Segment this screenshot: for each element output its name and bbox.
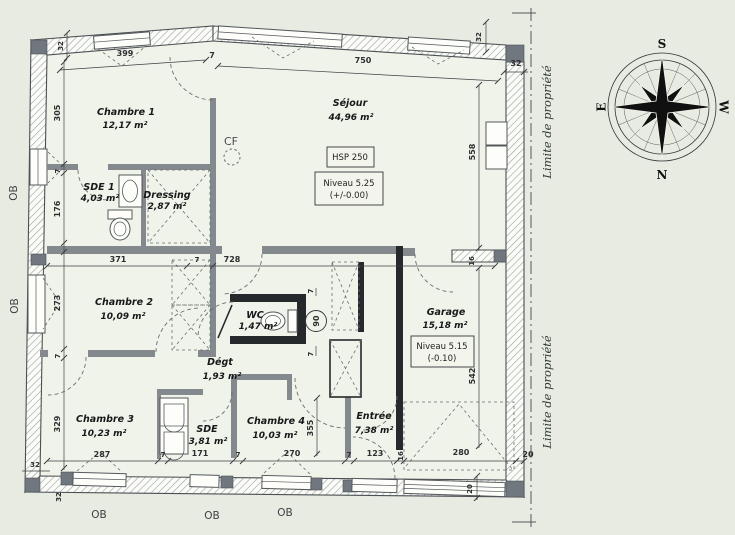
dim-inner-sejour: 728 — [224, 255, 241, 264]
dim-bottom-wall20a: 20 — [522, 450, 534, 459]
niveau-sejour-ref: (+/-0.00) — [330, 191, 369, 201]
room-label-sejour: Séjour — [333, 98, 369, 109]
floor-plan-page: Chambre 1 12,17 m² SDE 1 4,03 m² Dressin… — [0, 0, 735, 535]
dim-left-chambre2: 273 — [53, 295, 62, 312]
corner-block — [25, 478, 40, 492]
room-area-sejour: 44,96 m² — [328, 113, 374, 123]
compass-north: N — [657, 168, 668, 182]
dim-bottom-garage-door: 280 — [453, 448, 470, 457]
dim-mid-entree: 355 — [306, 419, 315, 436]
dim-inner-chambre2: 371 — [110, 255, 127, 264]
room-label-chambre4: Chambre 4 — [247, 416, 305, 427]
dim-top-chambre1: 399 — [117, 49, 134, 58]
room-area-wc: 1,47 m² — [239, 322, 278, 332]
dim-bottom-wall16: 16 — [397, 451, 405, 461]
room-area-sde1: 4,03 m² — [80, 194, 120, 204]
niveau-garage-label: Niveau 5.15 — [416, 342, 467, 352]
dim-bottom-wall20b: 20 — [466, 484, 474, 494]
room-area-garage: 15,18 m² — [423, 321, 468, 331]
toilet-sde1 — [108, 210, 132, 240]
dim-wc-wall7a: 7 — [307, 288, 315, 293]
dim-bottom-chambre4: 270 — [284, 449, 301, 458]
dim-left-sde1: 176 — [53, 200, 62, 217]
compass-star-main — [610, 55, 714, 159]
room-area-chambre1: 12,17 m² — [103, 121, 148, 131]
ob-left-2: OB — [9, 298, 21, 313]
room-area-dressing: 2,87 m² — [148, 202, 187, 212]
dim-wall32-bottomleft2: 32 — [55, 492, 63, 502]
dim-left-chambre1: 305 — [53, 104, 62, 121]
garage-wall — [396, 246, 403, 450]
dim-wall32-topleft: 32 — [57, 41, 65, 51]
dim-right-wall16: 16 — [468, 256, 476, 266]
dim-top-sejour: 750 — [355, 56, 372, 65]
floor-plan-drawing: Chambre 1 12,17 m² SDE 1 4,03 m² Dressin… — [0, 0, 735, 535]
corner-block — [31, 40, 47, 54]
room-area-degt: 1,93 m² — [203, 372, 242, 382]
room-label-degt: Dégt — [207, 357, 233, 368]
dim-wall32-bottomleft: 32 — [30, 461, 40, 469]
dim-bottom-wall7c: 7 — [347, 451, 352, 459]
room-label-dressing: Dressing — [143, 190, 190, 201]
ob-bottom-2: OB — [204, 510, 219, 522]
front-door-threshold — [352, 478, 397, 492]
room-label-sde1: SDE 1 — [83, 182, 114, 193]
dim-wall32-top2: 32 — [475, 32, 483, 42]
dim-left-chambre3: 329 — [53, 415, 62, 432]
dim-bottom-wall7b: 7 — [236, 451, 241, 459]
dim-wall32-topright: 32 — [510, 59, 521, 68]
room-label-garage: Garage — [427, 307, 466, 318]
limite-propriete-bottom: Limite de propriété — [540, 335, 554, 450]
corner-block — [506, 481, 524, 497]
dim-door90: 90 — [312, 315, 321, 327]
room-area-chambre4: 10,03 m² — [253, 431, 298, 441]
room-area-sde: 3,81 m² — [189, 437, 228, 447]
ob-bottom-3: OB — [277, 507, 292, 519]
dim-bottom-sde: 171 — [192, 449, 209, 458]
dim-bottom-entree: 123 — [367, 449, 384, 458]
room-label-sde: SDE — [196, 424, 218, 435]
dim-left-wall7a: 7 — [54, 168, 62, 173]
compass-west: W — [717, 99, 731, 114]
room-label-wc: WC — [246, 310, 263, 321]
dim-bottom-wall7a: 7 — [161, 451, 166, 459]
ob-left-1: OB — [8, 185, 20, 200]
dim-right-sejour: 558 — [468, 143, 477, 160]
ob-bottom-1: OB — [91, 509, 106, 521]
room-label-chambre2: Chambre 2 — [95, 297, 153, 308]
garage-door-threshold — [404, 479, 505, 496]
sejour-wall-unit — [486, 122, 507, 169]
dim-left-wall7b: 7 — [54, 353, 62, 358]
cf-label: CF — [224, 135, 238, 148]
hsp-label: HSP 250 — [332, 153, 368, 163]
room-area-entree: 7,38 m² — [355, 426, 394, 436]
compass-east: E — [595, 102, 609, 111]
room-label-chambre3: Chambre 3 — [76, 414, 134, 425]
niveau-garage-ref: (-0.10) — [428, 354, 457, 364]
room-label-chambre1: Chambre 1 — [97, 107, 155, 118]
niveau-sejour-label: Niveau 5.25 — [323, 179, 374, 189]
dim-bottom-chambre3: 287 — [94, 450, 111, 459]
sink-sde1 — [119, 175, 142, 207]
dim-wc-wall7b: 7 — [307, 351, 315, 356]
dim-right-garage: 542 — [468, 368, 477, 385]
dim-top-wall7: 7 — [209, 51, 215, 60]
room-label-entree: Entrée — [356, 411, 392, 422]
compass-south: S — [658, 37, 667, 51]
room-area-chambre3: 10,23 m² — [82, 429, 127, 439]
room-area-chambre2: 10,09 m² — [101, 312, 146, 322]
dim-inner-wall7: 7 — [195, 256, 200, 264]
compass-rose: S N E W — [595, 37, 731, 182]
limite-propriete-top: Limite de propriété — [540, 65, 554, 180]
